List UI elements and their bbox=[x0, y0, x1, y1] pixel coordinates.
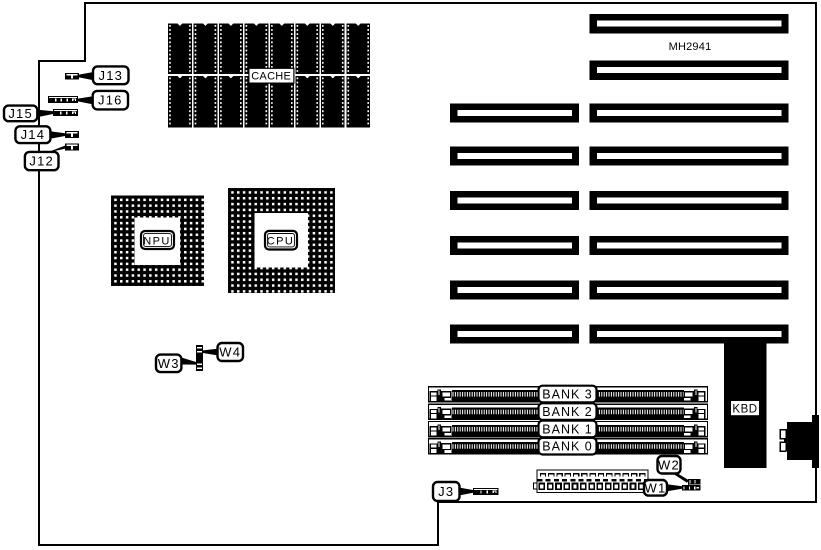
svg-text:W4: W4 bbox=[219, 345, 241, 360]
svg-text:CACHE: CACHE bbox=[251, 70, 291, 82]
svg-text:BANK 1: BANK 1 bbox=[542, 422, 592, 436]
svg-text:BANK 2: BANK 2 bbox=[542, 405, 592, 419]
svg-text:J15: J15 bbox=[8, 106, 33, 121]
svg-text:J16: J16 bbox=[98, 93, 123, 108]
svg-text:MH2941: MH2941 bbox=[669, 41, 712, 53]
svg-text:J12: J12 bbox=[29, 154, 54, 169]
svg-text:BANK 3: BANK 3 bbox=[542, 387, 592, 401]
svg-text:J13: J13 bbox=[99, 68, 124, 83]
svg-text:KBD: KBD bbox=[732, 403, 757, 415]
svg-text:J14: J14 bbox=[21, 127, 46, 142]
svg-text:J3: J3 bbox=[438, 484, 454, 499]
svg-text:W1: W1 bbox=[645, 480, 667, 495]
svg-text:W2: W2 bbox=[658, 457, 680, 472]
svg-text:BANK 0: BANK 0 bbox=[542, 440, 592, 454]
svg-text:CPU: CPU bbox=[267, 236, 294, 248]
svg-text:W3: W3 bbox=[158, 356, 180, 371]
svg-text:NPU: NPU bbox=[143, 236, 170, 248]
